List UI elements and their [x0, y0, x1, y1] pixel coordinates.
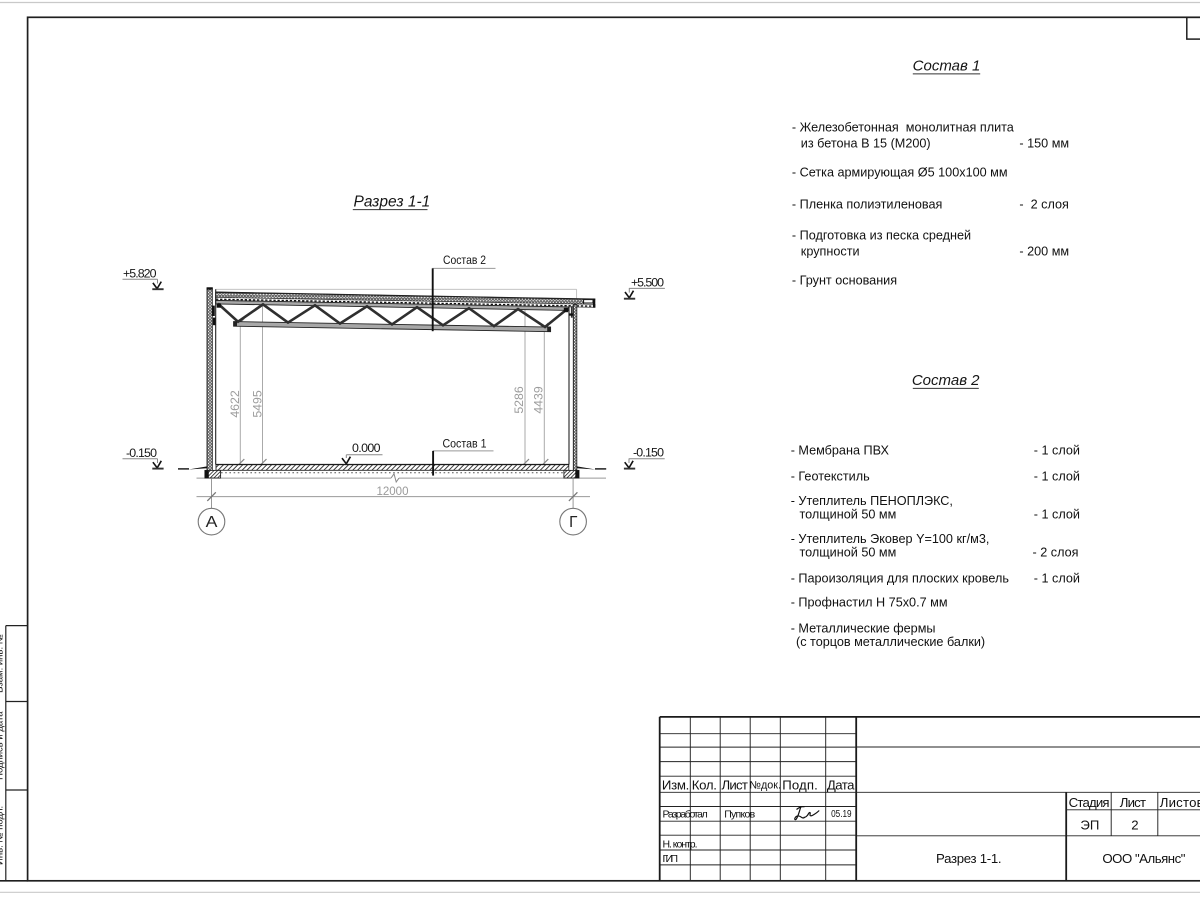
svg-text:- 1 слой: - 1 слой: [1034, 444, 1080, 458]
svg-text:4622: 4622: [228, 390, 242, 418]
svg-text:Стадия: Стадия: [1069, 795, 1110, 810]
svg-text:ГИП: ГИП: [663, 853, 679, 865]
svg-text:- Пароизоляция для плоских кро: - Пароизоляция для плоских кровель: [791, 571, 1010, 585]
svg-text:- Утеплитель Эковер Y=100 кг/м: - Утеплитель Эковер Y=100 кг/м3,: [791, 532, 990, 546]
svg-text:- Грунт основания: - Грунт основания: [792, 274, 897, 288]
svg-text:А: А: [206, 514, 219, 531]
svg-text:4439: 4439: [532, 386, 546, 414]
svg-text:Разрез 1-1: Разрез 1-1: [354, 194, 431, 211]
svg-text:- 1 слой: - 1 слой: [1034, 508, 1080, 522]
svg-text:- 1 слой: - 1 слой: [1034, 571, 1080, 585]
svg-text:крупности: крупности: [801, 244, 860, 258]
svg-text:Лист: Лист: [722, 777, 748, 792]
svg-text:Инв. № подл.: Инв. № подл.: [0, 806, 5, 865]
svg-text:- 150 мм: - 150 мм: [1019, 136, 1069, 150]
svg-text:Разрез 1-1.: Разрез 1-1.: [936, 851, 1002, 866]
svg-text:- Профнастил Н 75х0.7 мм: - Профнастил Н 75х0.7 мм: [791, 596, 948, 610]
svg-text:- Утеплитель ПЕНОПЛЭКС,: - Утеплитель ПЕНОПЛЭКС,: [791, 494, 953, 508]
svg-text:№док.: №док.: [749, 780, 781, 792]
svg-text:- Сетка армирующая Ø5 100х100: - Сетка армирующая Ø5 100х100 мм: [792, 166, 1008, 180]
svg-text:Подпись и дата: Подпись и дата: [0, 711, 5, 780]
svg-text:из бетона В 15 (М200): из бетона В 15 (М200): [801, 136, 931, 150]
svg-text:+5.820: +5.820: [123, 267, 157, 281]
svg-text:Состав 2: Состав 2: [443, 253, 486, 267]
svg-text:- Подготовка из песка средней: - Подготовка из песка средней: [792, 228, 971, 242]
svg-text:ООО "Альянс": ООО "Альянс": [1102, 851, 1185, 866]
svg-text:Дата: Дата: [827, 777, 855, 792]
svg-text:-0.150: -0.150: [633, 446, 664, 460]
svg-text:2: 2: [1131, 817, 1138, 832]
svg-text:Г: Г: [569, 514, 577, 531]
svg-text:Состав 1: Состав 1: [913, 58, 981, 75]
svg-text:Состав 2: Состав 2: [912, 372, 980, 389]
svg-text:- 2 слоя: - 2 слоя: [1019, 198, 1069, 212]
svg-text:- 200 мм: - 200 мм: [1019, 244, 1069, 258]
svg-text:Изм.: Изм.: [662, 777, 690, 792]
svg-text:ЭП: ЭП: [1080, 817, 1099, 832]
svg-text:- Мембрана ПВХ: - Мембрана ПВХ: [791, 444, 890, 458]
svg-text:05.19: 05.19: [831, 809, 852, 820]
svg-text:- 2 слоя: - 2 слоя: [1033, 546, 1079, 560]
svg-text:Н. контр.: Н. контр.: [663, 838, 698, 850]
svg-text:- 1 слой: - 1 слой: [1034, 469, 1080, 483]
svg-text:12000: 12000: [377, 486, 409, 498]
svg-text:Состав 1: Состав 1: [443, 437, 487, 451]
svg-text:Разработал: Разработал: [663, 808, 708, 820]
svg-text:-0.150: -0.150: [126, 446, 157, 460]
svg-text:0.000: 0.000: [352, 441, 381, 455]
svg-text:5495: 5495: [250, 390, 264, 418]
svg-text:+5.500: +5.500: [631, 276, 664, 290]
svg-text:Листов: Листов: [1160, 795, 1200, 810]
svg-text:- Железобетонная монолитная п: - Железобетонная монолитная плита: [792, 120, 1015, 134]
svg-text:толщиной 50 мм: толщиной 50 мм: [800, 546, 897, 560]
svg-text:Лист: Лист: [1120, 795, 1146, 810]
svg-text:толщиной 50 мм: толщиной 50 мм: [800, 508, 897, 522]
svg-text:Взам. инв. №: Взам. инв. №: [0, 634, 5, 693]
svg-text:- Пленка полиэтиленовая: - Пленка полиэтиленовая: [792, 198, 942, 212]
svg-text:5286: 5286: [512, 386, 526, 414]
svg-text:Подп.: Подп.: [782, 777, 818, 792]
svg-text:(с торцов металлические балки): (с торцов металлические балки): [796, 635, 985, 649]
svg-text:Кол.: Кол.: [692, 777, 717, 792]
svg-text:- Металлические фермы: - Металлические фермы: [791, 621, 936, 635]
svg-text:Пупков: Пупков: [724, 808, 755, 820]
svg-text:- Геотекстиль: - Геотекстиль: [791, 469, 870, 483]
